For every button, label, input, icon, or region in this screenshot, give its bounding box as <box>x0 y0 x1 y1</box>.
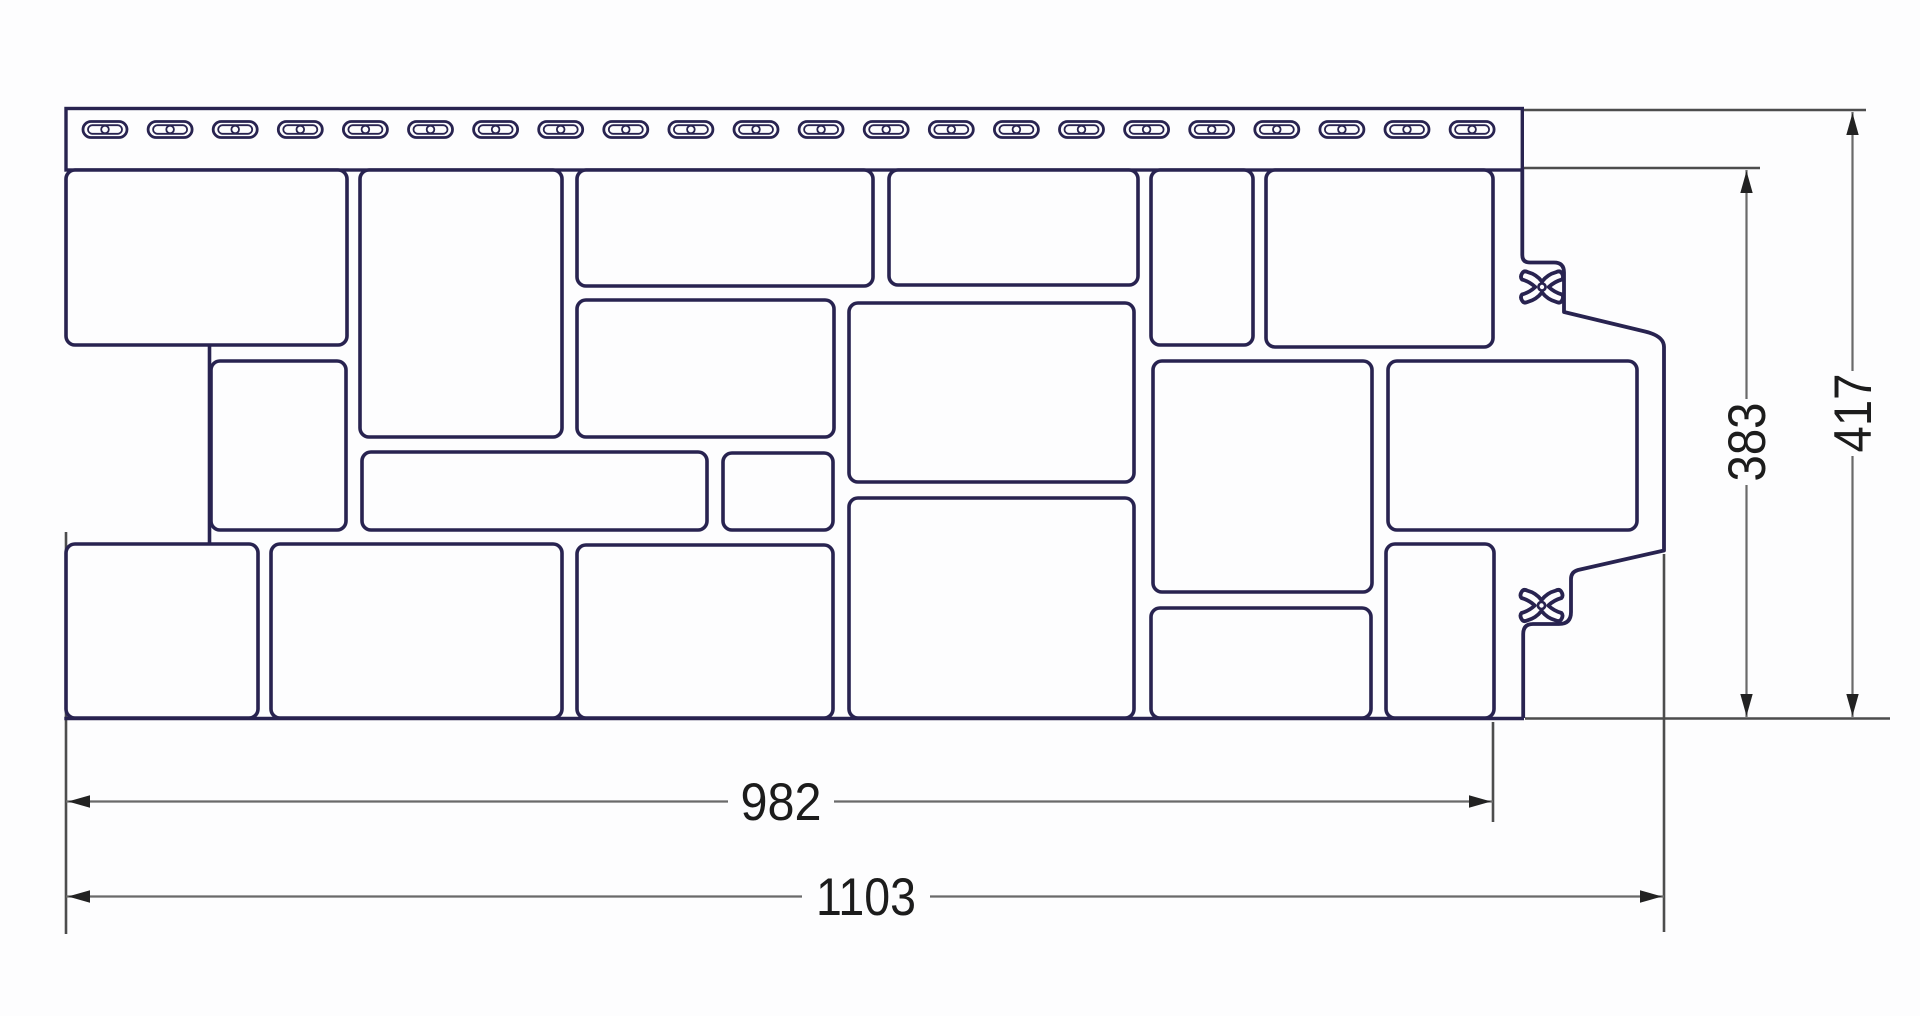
svg-text:1103: 1103 <box>816 868 916 927</box>
svg-text:982: 982 <box>741 773 822 832</box>
svg-text:383: 383 <box>1718 403 1777 482</box>
svg-text:417: 417 <box>1824 374 1883 453</box>
